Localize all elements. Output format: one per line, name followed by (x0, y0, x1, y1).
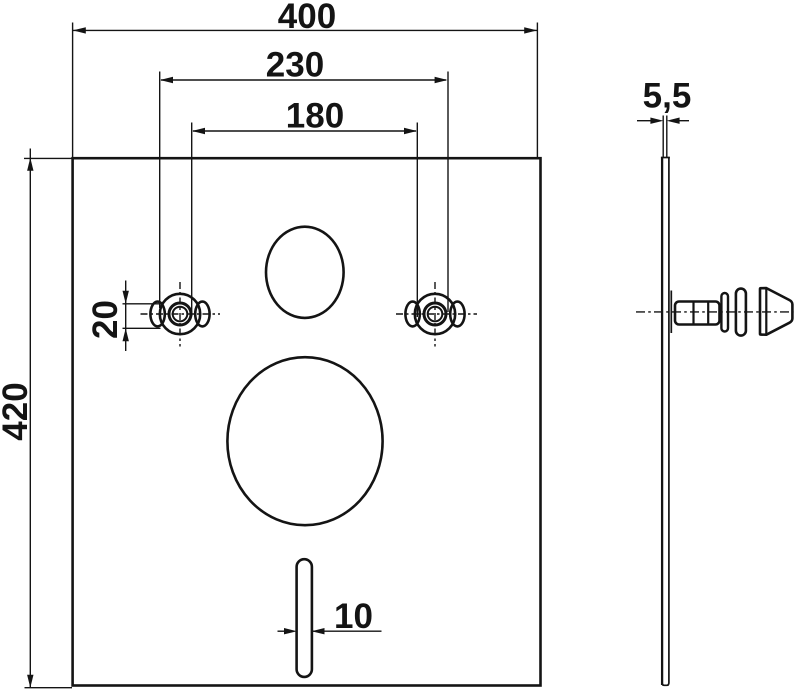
svg-text:400: 400 (278, 0, 336, 36)
svg-text:230: 230 (266, 46, 324, 85)
svg-text:5,5: 5,5 (643, 77, 692, 116)
svg-text:180: 180 (286, 97, 344, 136)
svg-text:20: 20 (86, 300, 125, 339)
svg-text:420: 420 (0, 382, 35, 440)
svg-text:10: 10 (334, 597, 373, 636)
